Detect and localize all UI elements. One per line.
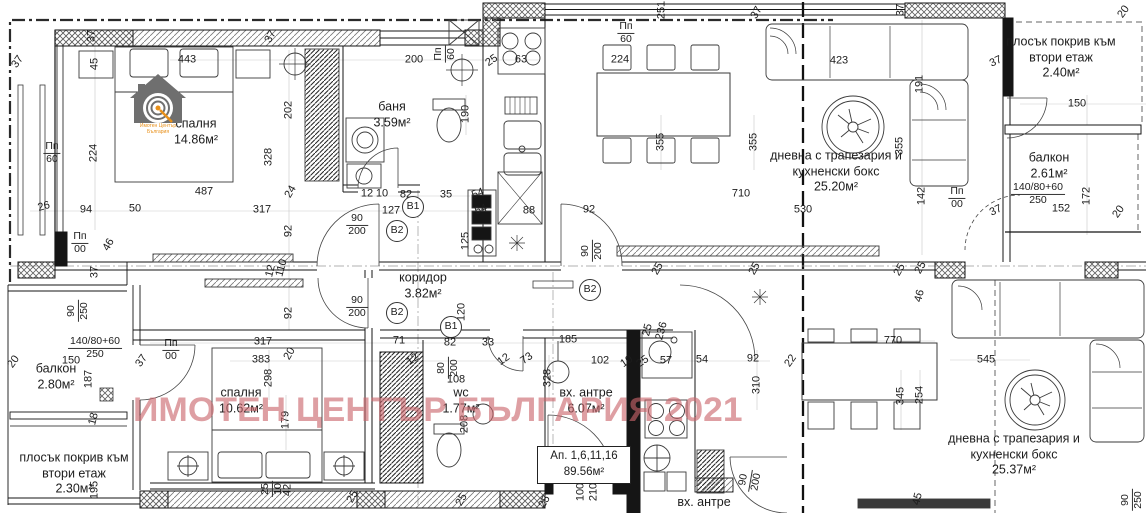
dimension-label: 25 — [345, 489, 361, 505]
dimension-label: 63 — [515, 55, 527, 66]
door-type-marker: B1 — [402, 196, 424, 218]
dimension-label: 92 — [747, 354, 759, 365]
dimension-label: 25 — [747, 261, 763, 277]
apartment-area: 89.56м² — [564, 466, 605, 478]
fraction-dimension: 90200 — [580, 240, 604, 262]
dimension-label: 42 — [283, 484, 294, 496]
dimension-label: 37 — [896, 4, 907, 16]
dimension-label: 770 — [884, 336, 902, 347]
apartment-number: Ап. 1,6,11,16 — [550, 450, 617, 462]
room-label: плосък покрив към втори етаж2.30м² — [9, 451, 139, 498]
fraction-dimension: Пп00 — [71, 231, 88, 255]
dimension-label: 187 — [84, 370, 95, 388]
dimension-label: 46 — [913, 289, 927, 304]
room-label: дневна с трапезария и кухненски бокс25.3… — [929, 432, 1099, 479]
dimension-label: 20 — [282, 346, 298, 362]
dimension-label: 298 — [264, 369, 275, 387]
watermark: ИМОТЕН ЦЕНТЪР БЪЛГАРИЯ 2021 — [133, 391, 743, 430]
dimension-label: 35 — [440, 190, 452, 201]
dimension-label: 25 — [454, 492, 470, 508]
dimension-label: 202 — [284, 101, 295, 119]
dimension-label: 20 — [6, 354, 22, 370]
dimension-label: 54 — [470, 187, 485, 202]
dimension-label: 210 — [589, 483, 600, 501]
floorplan-canvas: 3737454433722420232848726945046373172412… — [0, 0, 1146, 513]
dimension-label: 37 — [988, 203, 1004, 218]
fraction-dimension: Пп00 — [162, 338, 179, 362]
dimension-label: 73 — [519, 351, 535, 367]
dimension-label: 37 — [90, 266, 101, 278]
dimension-label: 24 — [283, 184, 299, 200]
dimension-label: 383 — [252, 355, 270, 366]
fraction-dimension: 2510 — [260, 481, 284, 497]
dimension-label: 224 — [611, 55, 629, 66]
dimension-label: 88 — [523, 206, 535, 217]
dimension-label: 185 — [559, 335, 577, 346]
dimension-label: 328 — [264, 148, 275, 166]
room-label: дневна с трапезария и кухненски бокс25.2… — [751, 149, 921, 196]
dimension-label: 25 — [892, 262, 908, 278]
dimension-label: 25 — [537, 494, 553, 510]
dimension-label: 236 — [654, 321, 669, 342]
fraction-dimension: 90250 — [1120, 489, 1144, 511]
fraction-dimension: 140/80+60250 — [1011, 182, 1065, 206]
fraction-dimension: 80200 — [436, 357, 460, 379]
dimension-label: 25 — [650, 261, 666, 277]
room-label: коридор3.82м² — [399, 270, 447, 301]
fraction-dimension: 90200 — [346, 295, 368, 319]
dimension-label: 37 — [134, 353, 150, 369]
fraction-dimension: Пп60 — [617, 21, 634, 45]
dimension-label: 355 — [656, 133, 667, 151]
room-label: плосък покрив към втори етаж2.40м² — [996, 35, 1126, 82]
dimension-label: 317 — [254, 337, 272, 348]
dimension-label: 37 — [87, 30, 98, 42]
dimension-label: 150 — [1068, 99, 1086, 110]
dimension-label: 92 — [284, 225, 295, 237]
dimension-label: 545 — [977, 355, 995, 366]
dimension-label: 20 — [1116, 4, 1132, 20]
dimension-label: 345 — [896, 387, 907, 405]
dimension-label: 10 — [619, 354, 635, 370]
dimension-label: 127 — [382, 206, 400, 217]
logo-text-line2: България — [147, 129, 169, 135]
dimension-label: 37 — [749, 5, 765, 21]
dimension-label: 25 — [641, 323, 655, 338]
dimension-label: 92 — [583, 205, 595, 216]
dimension-label: 12 — [361, 189, 373, 200]
dimension-label: 317 — [253, 205, 271, 216]
door-type-marker: B1 — [440, 316, 462, 338]
dimension-label: 54 — [473, 203, 488, 218]
dimension-label: 254 — [915, 386, 926, 404]
dimension-label: 45 — [911, 492, 925, 507]
dimension-label: 71 — [393, 336, 405, 347]
fraction-dimension: 90200 — [346, 213, 368, 237]
dimension-label: 92 — [284, 307, 295, 319]
dimension-label: 20 — [1111, 204, 1127, 220]
dimension-label: 46 — [101, 237, 117, 253]
dimension-label: 172 — [1082, 187, 1093, 205]
fraction-dimension: 140/80+60250 — [68, 336, 122, 360]
apartment-summary-box: Ап. 1,6,11,16 89.56м² — [537, 446, 631, 484]
dimension-label: 251 — [657, 1, 668, 19]
dimension-label: 200 — [405, 55, 423, 66]
dimension-label: 191 — [915, 75, 926, 93]
dimension-label: 33 — [482, 338, 494, 349]
dimension-label: 12 — [405, 352, 421, 368]
door-type-marker: B2 — [386, 220, 408, 242]
dimension-label: 487 — [195, 187, 213, 198]
room-label: баня3.59м² — [373, 99, 410, 130]
dimension-label: 328 — [543, 369, 554, 387]
dimension-label: 50 — [129, 204, 141, 215]
dimension-label: 82 — [444, 338, 456, 349]
dimension-label: 37 — [263, 29, 279, 45]
dimension-label: 530 — [794, 205, 812, 216]
fraction-dimension: Пп60 — [433, 45, 457, 62]
dimension-label: 10 — [376, 189, 388, 200]
agency-logo: Имотен Център България — [128, 74, 188, 141]
door-type-marker: B2 — [579, 279, 601, 301]
dimension-label: 94 — [80, 205, 92, 216]
room-label: вх. антре — [677, 495, 730, 511]
dimension-label: 110 — [274, 258, 289, 278]
dimension-label: 310 — [752, 376, 763, 394]
dimension-label: 102 — [591, 356, 609, 367]
dimension-label: 125 — [461, 232, 472, 250]
dimension-label: 224 — [89, 144, 100, 162]
dimension-label: 18 — [87, 412, 101, 427]
dimension-label: 57 — [660, 356, 672, 367]
dimension-label: 45 — [90, 58, 101, 70]
fraction-dimension: Пп60 — [43, 141, 60, 165]
dimension-label: 190 — [461, 105, 472, 123]
dimension-label: 100 — [576, 483, 587, 501]
dimension-label: 26 — [37, 200, 52, 214]
dimension-label: 12 — [496, 352, 512, 368]
room-label: балкон2.61м² — [1029, 150, 1070, 181]
dimension-label: 54 — [696, 355, 708, 366]
dimension-label: 25 — [913, 260, 929, 276]
dimension-label: 423 — [830, 56, 848, 67]
dimension-label: 25 — [635, 354, 651, 370]
dimension-label: 25 — [484, 53, 500, 69]
fraction-dimension: 90250 — [66, 300, 90, 322]
room-label: балкон2.80м² — [36, 361, 77, 392]
fraction-dimension: 90200 — [736, 468, 763, 493]
dimension-label: 37 — [10, 54, 26, 70]
dimension-label: 443 — [178, 55, 196, 66]
door-type-marker: B2 — [386, 302, 408, 324]
fraction-dimension: Пп00 — [948, 186, 965, 210]
dimension-label: 710 — [732, 189, 750, 200]
dimension-label: 22 — [783, 353, 799, 369]
